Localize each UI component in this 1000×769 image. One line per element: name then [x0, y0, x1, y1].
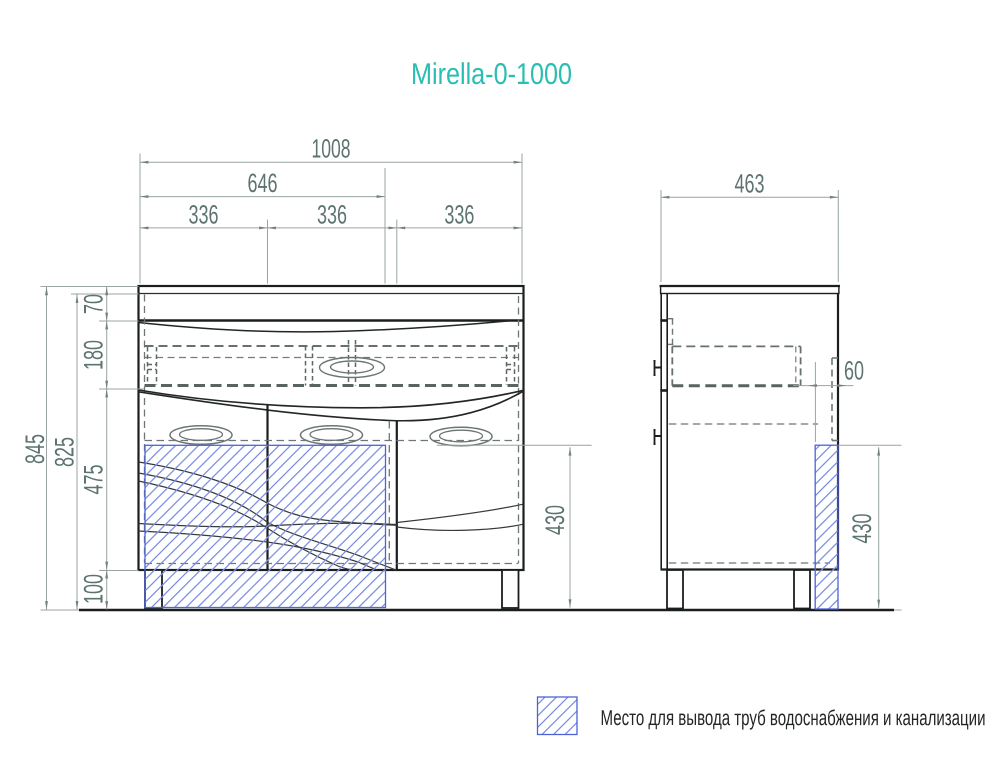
svg-text:Mirella-0-1000: Mirella-0-1000 [411, 58, 572, 91]
svg-text:1008: 1008 [311, 133, 350, 163]
svg-text:845: 845 [20, 434, 50, 464]
svg-text:Место для вывода труб водоснаб: Место для вывода труб водоснабжения и ка… [600, 706, 985, 730]
svg-text:475: 475 [79, 465, 109, 495]
svg-text:180: 180 [79, 340, 109, 370]
svg-text:463: 463 [734, 168, 764, 198]
svg-text:70: 70 [79, 294, 109, 314]
svg-text:100: 100 [79, 574, 109, 604]
svg-text:336: 336 [317, 199, 347, 229]
svg-text:430: 430 [540, 505, 570, 535]
svg-text:336: 336 [188, 199, 218, 229]
svg-text:825: 825 [50, 437, 80, 467]
svg-text:646: 646 [247, 168, 277, 198]
svg-text:60: 60 [844, 356, 864, 386]
svg-text:336: 336 [444, 199, 474, 229]
svg-text:430: 430 [847, 514, 877, 544]
